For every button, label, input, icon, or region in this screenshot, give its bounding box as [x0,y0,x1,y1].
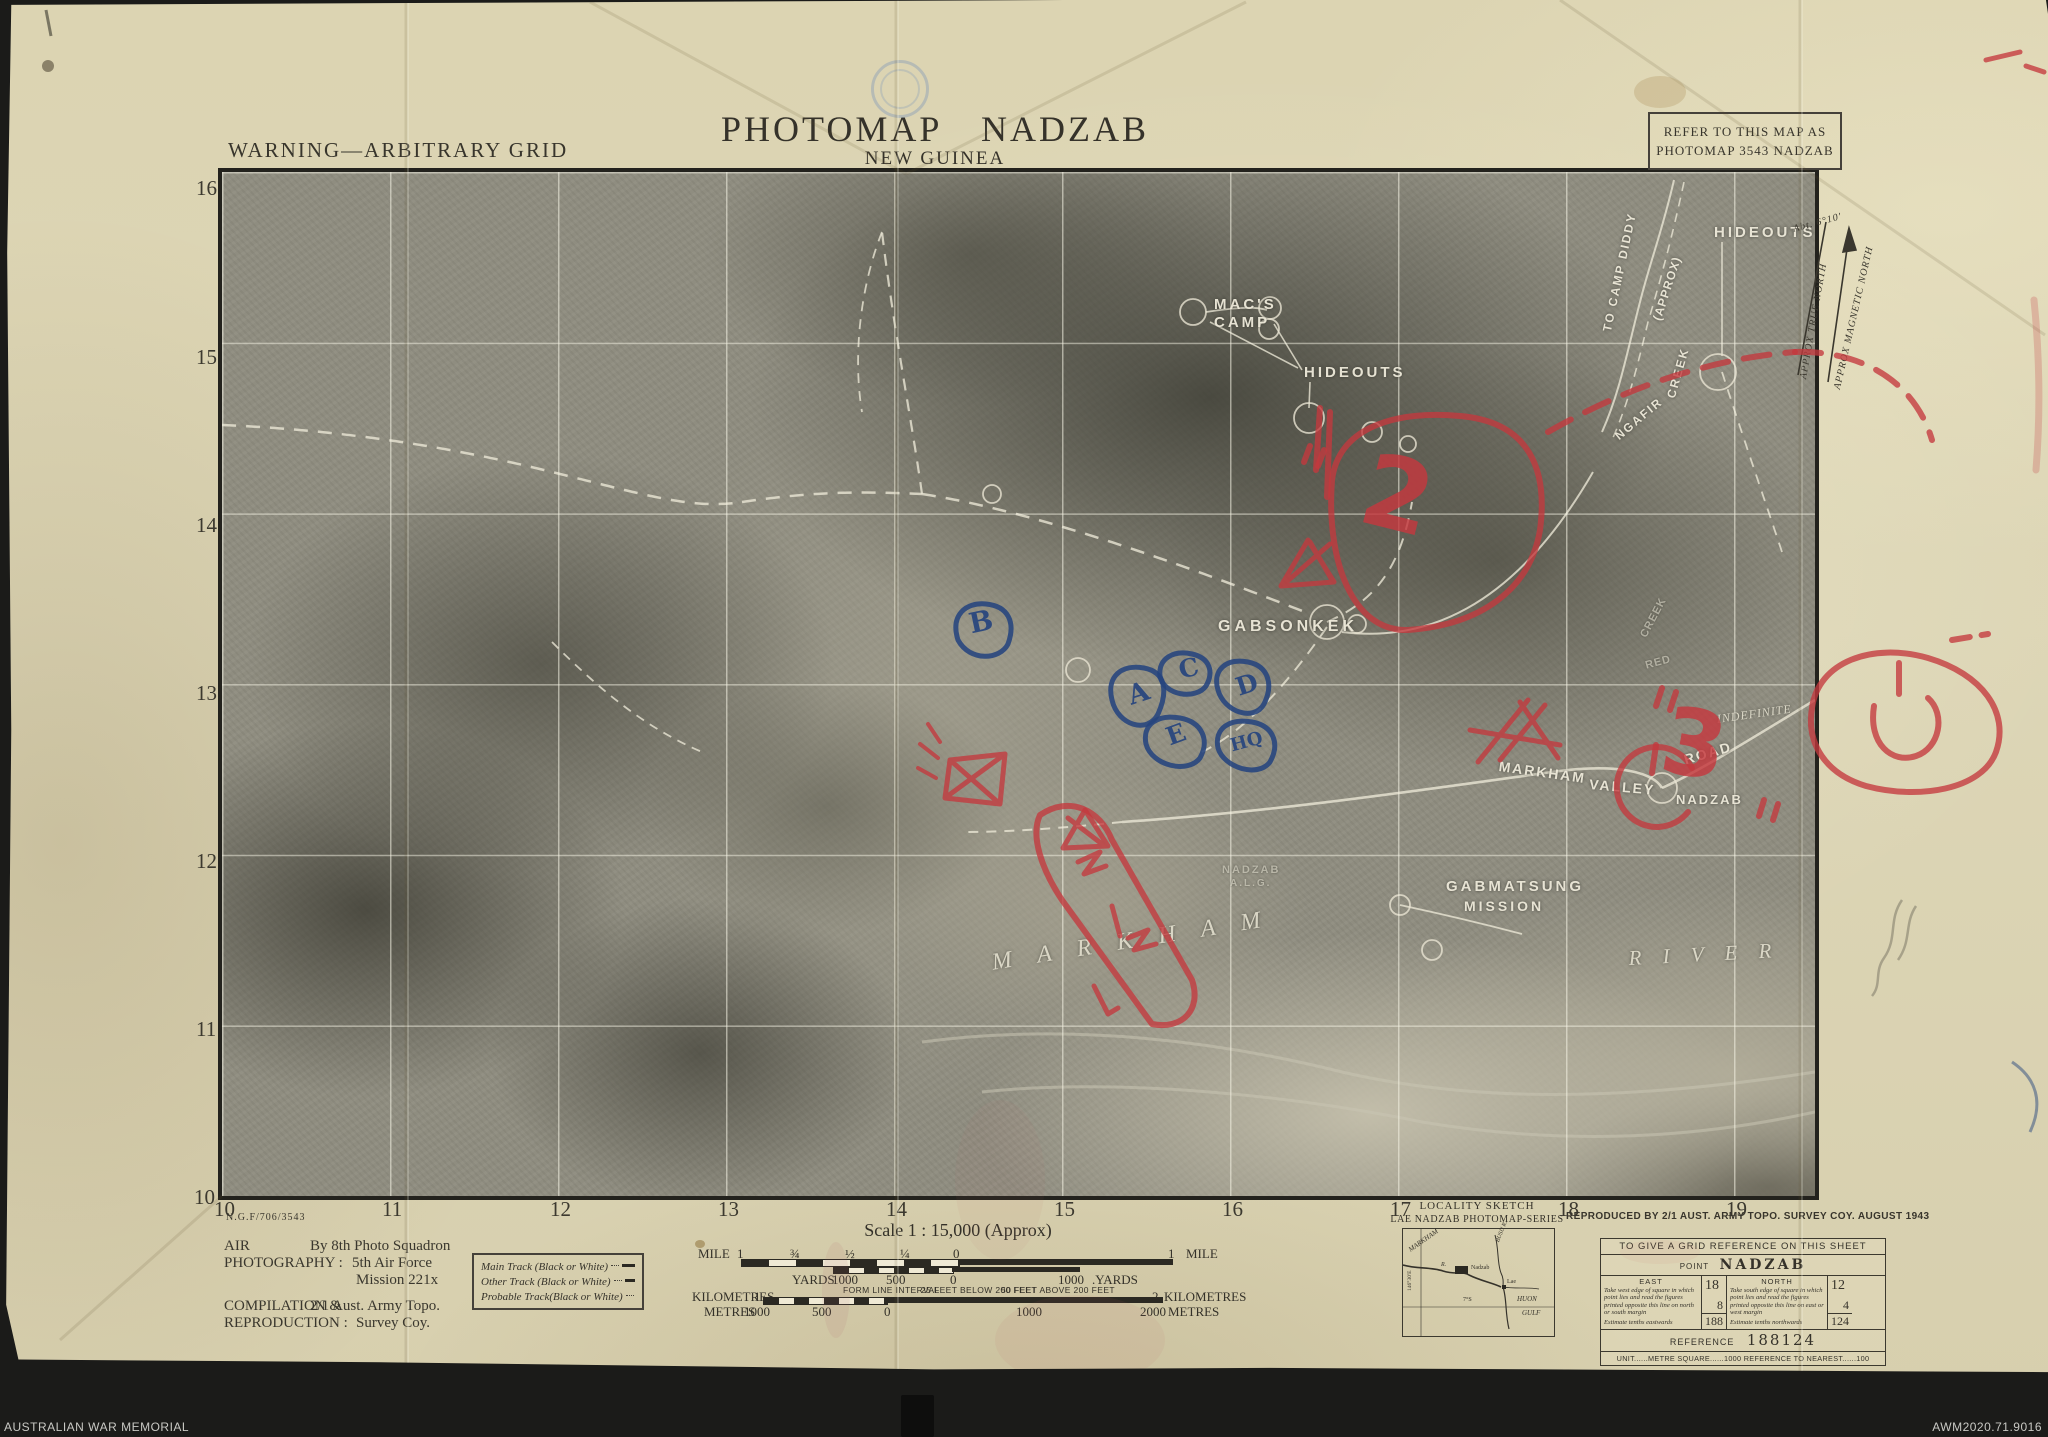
grid-number: 10 [194,1185,215,1210]
credit-line: 2/1 Aust. Army Topo. [310,1298,440,1315]
scalebar-label: .YARDS [1092,1272,1138,1288]
scalebar-label: METRES [704,1304,755,1320]
scalebar-label: 2000 [1140,1304,1166,1320]
locality-sketch-map [1403,1229,1554,1336]
east-small: 8 [1702,1298,1726,1313]
red-ellipse-right-margin [1811,653,2000,792]
scalebar-label: 1000 [832,1272,858,1288]
credit-line: Mission 221x [356,1272,438,1289]
mile-scalebar [741,1259,1173,1265]
credit-line: AIR [224,1238,250,1255]
pencil-note [1872,900,1916,996]
nadzab-marker [1455,1266,1468,1274]
arbitrary-grid-lines [222,172,1815,1196]
legend-line-sample [625,1279,635,1282]
grid-number: 15 [196,345,217,370]
gridref-unit-line: UNIT......METRE SQUARE......1000 REFEREN… [1601,1352,1885,1365]
locality-sketch: MARKHAMR.NadzabBUSU R.LaeHUONGULF7°S146°… [1402,1228,1555,1337]
grid-number: 12 [196,849,217,874]
grid-number: 16 [196,176,217,201]
gridref-title: TO GIVE A GRID REFERENCE ON THIS SHEET [1601,1239,1885,1255]
east-text: Take west edge of square in which point … [1604,1287,1698,1317]
grid-number: 13 [718,1197,739,1222]
credit-line: PHOTOGRAPHY : [224,1255,343,1272]
east-big: 18 [1702,1276,1726,1298]
legend-row: Other Track (Black or White) [481,1276,635,1288]
north-big: 12 [1828,1276,1852,1298]
north-label: APPROX MAGNETIC NORTH [1832,245,1876,390]
aerial-photo-mosaic [218,168,1819,1200]
archive-credit: AUSTRALIAN WAR MEMORIAL [4,1420,189,1434]
grid-number: 15 [1054,1197,1075,1222]
legend-label: Probable Track(Black or White) [481,1291,623,1303]
plate-number: N.G.F/706/3543 [226,1212,306,1223]
gridref-reference: REFERENCE 188124 [1601,1330,1885,1352]
gridref-point: POINT NADZAB [1601,1255,1885,1276]
legend-row: Main Track (Black or White) [481,1261,635,1273]
map-title: PHOTOMAP NADZAB [721,108,1149,150]
grid-number: 12 [550,1197,571,1222]
scalebar-label: 500 [812,1304,832,1320]
scalebar-label: METRES [1168,1304,1219,1320]
reference-label: REFERENCE [1670,1337,1735,1347]
scalebar-label: 500 [886,1272,906,1288]
scalebar-label: 0 [884,1304,891,1320]
refer-line2: PHOTOMAP 3543 NADZAB [1656,143,1833,159]
north-header: NORTH [1730,1278,1824,1286]
warning-note: WARNING—ARBITRARY GRID [228,138,568,163]
legend-line-sample [622,1264,635,1267]
archive-accession-number: AWM2020.71.9016 [1932,1420,2042,1434]
metres-scalebar [763,1297,1163,1303]
scalebar-label: KILOMETRES [692,1289,774,1305]
north-text: Take south edge of square in which point… [1730,1287,1824,1317]
scalebar-label: 0 [950,1272,957,1288]
grid-number: 16 [1222,1197,1243,1222]
legend-label: Other Track (Black or White) [481,1276,611,1288]
scalebar-label: 1 [754,1289,761,1305]
archival-photograph: AUSTRALIAN WAR MEMORIAL AWM2020.71.9016 [0,0,2048,1437]
refer-line1: REFER TO THIS MAP AS [1664,124,1827,140]
grid-number: 14 [886,1197,907,1222]
lae-marker [1502,1285,1506,1289]
east-figures: 18 8 188 [1701,1276,1727,1329]
grid-reference-box: TO GIVE A GRID REFERENCE ON THIS SHEET P… [1600,1238,1886,1366]
refer-box: REFER TO THIS MAP AS PHOTOMAP 3543 NADZA… [1648,112,1842,170]
credit-line: REPRODUCTION : [224,1315,348,1332]
track-network [222,172,1815,1196]
credit-line: By 8th Photo Squadron [310,1238,450,1255]
locality-sketch-title: LOCALITY SKETCH [1419,1200,1534,1212]
map-subtitle: NEW GUINEA [865,148,1006,170]
grid-number: 14 [196,513,217,538]
point-label: POINT [1680,1262,1709,1271]
east-header: EAST [1604,1278,1698,1286]
legend-row: Probable Track(Black or White) [481,1291,635,1303]
locality-sketch-series: LAE NADZAB PHOTOMAP-SERIES [1390,1214,1563,1225]
grid-number: 11 [196,1017,216,1042]
scalebar-label: 25 FEET BELOW 200 FEET [921,1285,1037,1295]
scalebar-label: KILOMETRES [1164,1289,1246,1305]
reproduction-credit: REPRODUCED BY 2/1 AUST. ARMY TOPO. SURVE… [1566,1211,1929,1222]
scalebar-label: MILE [1186,1246,1218,1262]
east-instructions: EAST Take west edge of square in which p… [1601,1276,1701,1329]
credit-line: COMPILATION & [224,1298,341,1315]
legend-leader [611,1265,619,1266]
north-estimate: Estimate tenths northwards [1730,1319,1824,1327]
north-small: 4 [1828,1298,1852,1313]
legend-leader [614,1280,622,1281]
yards-scalebar [833,1267,1080,1272]
scalebar-label: 1000 [744,1304,770,1320]
scalebar-label: 50 FEET ABOVE 200 FEET [1001,1285,1115,1295]
legend-leader [626,1295,634,1296]
faint-blue-stamp [871,60,929,118]
map-sheet: WARNING—ARBITRARY GRID PHOTOMAP NADZAB N… [0,0,2048,1403]
east-estimate: Estimate tenths eastwards [1604,1319,1698,1327]
track-legend: Main Track (Black or White)Other Track (… [472,1253,644,1310]
grid-number: 11 [382,1197,402,1222]
north-figures: 12 4 124 [1827,1276,1852,1329]
grid-number: 13 [196,681,217,706]
scalebar-label: MILE [698,1246,730,1262]
north-instructions: NORTH Take south edge of square in which… [1727,1276,1827,1329]
east-combined: 188 [1702,1313,1726,1329]
scale-statement: Scale 1 : 15,000 (Approx) [864,1220,1051,1241]
scalebar-label: 1000 [1016,1304,1042,1320]
north-combined: 124 [1828,1313,1852,1329]
credit-line: Survey Coy. [356,1315,430,1332]
legend-label: Main Track (Black or White) [481,1261,608,1273]
scalebar-label: 1000 [1058,1272,1084,1288]
reference-value: 188124 [1747,1331,1816,1349]
scalebar-label: FORM LINE INTERVAL [843,1285,940,1295]
point-value: NADZAB [1720,1257,1807,1273]
photo-clamp [901,1395,934,1437]
scalebar-label: YARDS [792,1272,835,1288]
credit-line: 5th Air Force [352,1255,432,1272]
